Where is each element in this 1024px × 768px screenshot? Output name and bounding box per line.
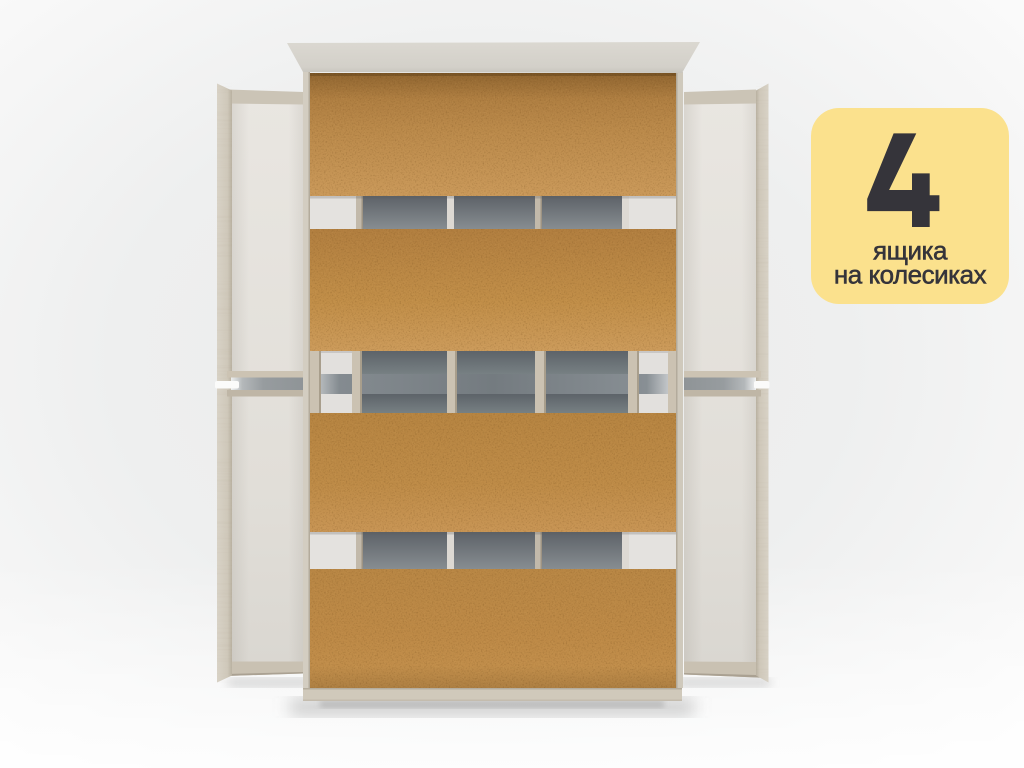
svg-text:на колесиках: на колесиках (834, 260, 987, 290)
